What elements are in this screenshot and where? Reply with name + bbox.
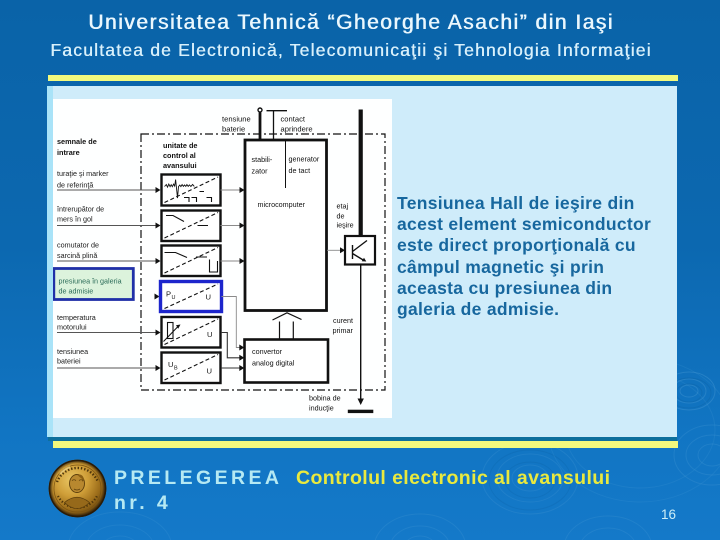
svg-text:tensiune: tensiune: [222, 114, 251, 123]
svg-text:unitate de: unitate de: [163, 141, 197, 150]
svg-text:intrare: intrare: [57, 148, 80, 157]
svg-text:presiunea în galeria: presiunea în galeria: [59, 277, 122, 286]
svg-text:sarcină plină: sarcină plină: [57, 251, 97, 260]
svg-text:U: U: [206, 293, 211, 302]
svg-text:B: B: [174, 366, 178, 372]
svg-text:temperatura: temperatura: [57, 313, 96, 322]
svg-text:motorului: motorului: [57, 323, 87, 332]
svg-text:primar: primar: [333, 326, 354, 335]
svg-text:mers în gol: mers în gol: [57, 215, 93, 224]
svg-text:de referinţă: de referinţă: [57, 181, 93, 190]
svg-text:de admisie: de admisie: [59, 287, 94, 296]
svg-text:etaj: etaj: [337, 202, 349, 211]
svg-text:ieşire: ieşire: [337, 221, 354, 230]
svg-text:bobina de: bobina de: [309, 394, 341, 403]
svg-text:P: P: [166, 290, 171, 299]
svg-text:convertor: convertor: [252, 347, 283, 356]
svg-text:control al: control al: [163, 151, 196, 160]
svg-text:aprindere: aprindere: [281, 124, 313, 133]
svg-text:de: de: [337, 212, 345, 221]
svg-text:comutator de: comutator de: [57, 241, 99, 250]
svg-text:U: U: [168, 360, 173, 369]
svg-text:U: U: [172, 295, 176, 301]
svg-text:turaţie şi marker: turaţie şi marker: [57, 169, 109, 178]
svg-text:bateriei: bateriei: [57, 357, 81, 366]
svg-text:tensiunea: tensiunea: [57, 347, 88, 356]
svg-text:întrerupător de: întrerupător de: [56, 205, 104, 214]
svg-text:analog digital: analog digital: [252, 359, 295, 368]
svg-text:U: U: [207, 367, 212, 376]
svg-text:zator: zator: [252, 167, 269, 176]
svg-text:microcomputer: microcomputer: [258, 200, 306, 209]
svg-text:avansului: avansului: [163, 161, 197, 170]
svg-text:stabili-: stabili-: [252, 155, 273, 164]
svg-text:curent: curent: [333, 316, 353, 325]
svg-text:de tact: de tact: [289, 166, 311, 175]
svg-text:generator: generator: [289, 155, 320, 164]
svg-text:inducţie: inducţie: [309, 404, 334, 413]
svg-text:semnale de: semnale de: [57, 137, 97, 146]
svg-text:contact: contact: [281, 114, 306, 123]
svg-text:baterie: baterie: [222, 124, 245, 133]
svg-text:U: U: [207, 330, 212, 339]
